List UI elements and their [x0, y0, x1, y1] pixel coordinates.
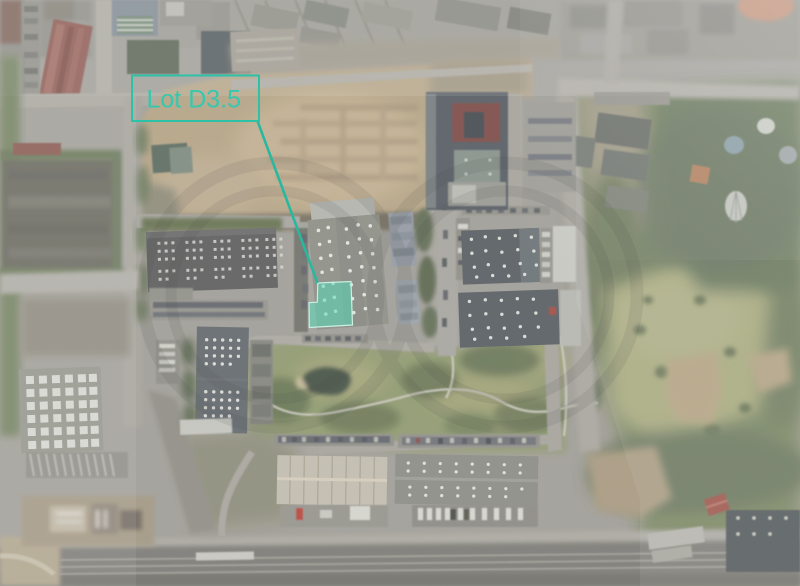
svg-text:Lot D3.5: Lot D3.5 — [147, 86, 242, 114]
